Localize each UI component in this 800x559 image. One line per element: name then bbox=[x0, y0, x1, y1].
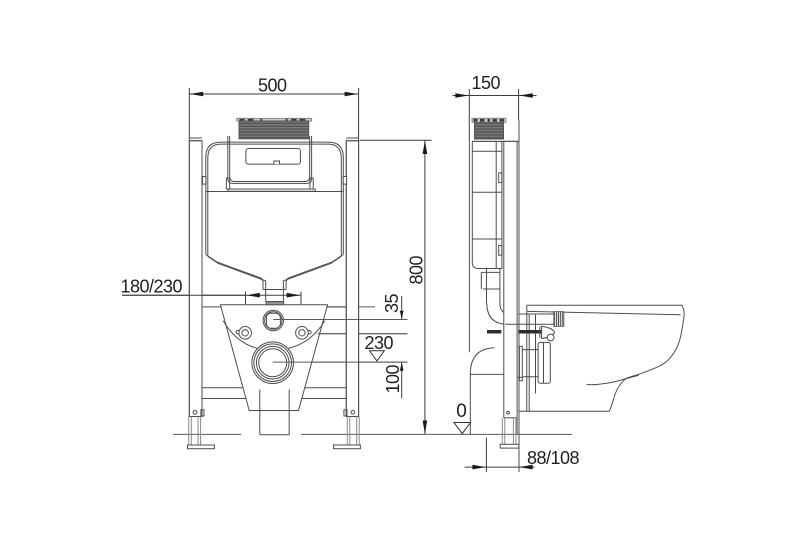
svg-text:0: 0 bbox=[456, 401, 466, 422]
svg-text:150: 150 bbox=[472, 73, 501, 93]
svg-text:180/230: 180/230 bbox=[121, 276, 183, 296]
svg-text:35: 35 bbox=[382, 293, 402, 313]
svg-text:230: 230 bbox=[365, 333, 394, 353]
svg-text:100: 100 bbox=[383, 364, 403, 393]
svg-text:500: 500 bbox=[258, 76, 287, 96]
svg-text:88/108: 88/108 bbox=[527, 448, 580, 468]
svg-text:800: 800 bbox=[406, 255, 426, 284]
